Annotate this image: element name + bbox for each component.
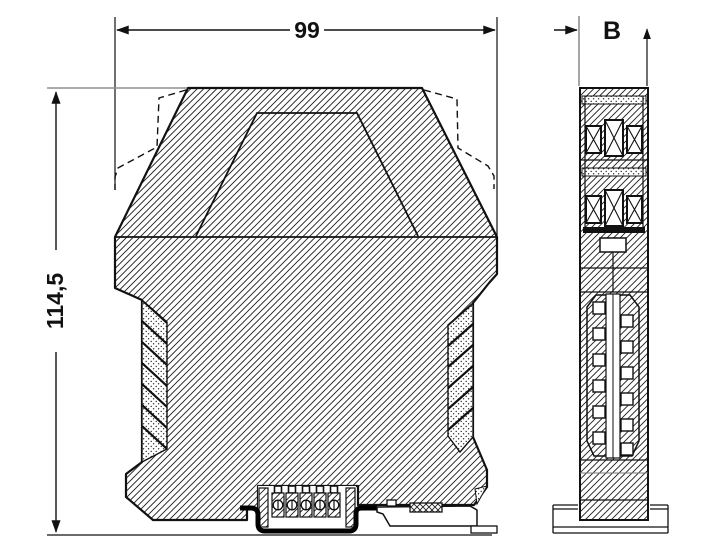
- screw-terminal: [286, 486, 298, 517]
- divider-band: [583, 227, 645, 233]
- depth-dimension-label: B: [603, 17, 621, 45]
- screw-terminals: [272, 486, 340, 517]
- drawing-page: 99 114,5 B: [0, 0, 706, 549]
- terminal-serrations-left: [142, 300, 167, 462]
- gasket-strip-mid: [582, 168, 646, 176]
- screw-terminal: [272, 486, 284, 517]
- terminal-row-2: [586, 190, 642, 226]
- technical-drawing-canvas: 99 114,5 B: [0, 0, 706, 549]
- gasket-strip-top: [582, 96, 646, 104]
- terminal-row-1: [586, 120, 642, 156]
- depth-dimension: B: [554, 16, 647, 86]
- width-dimension-label: 99: [294, 17, 320, 43]
- screw-terminal: [314, 486, 326, 517]
- screw-terminal: [300, 486, 312, 517]
- height-dimension-label: 114,5: [42, 273, 68, 329]
- housing-outline: [115, 88, 497, 520]
- terminal-serrations-right: [448, 303, 473, 452]
- bottom-connector: [258, 486, 356, 530]
- side-view: [553, 88, 668, 533]
- screw-terminal: [328, 486, 340, 517]
